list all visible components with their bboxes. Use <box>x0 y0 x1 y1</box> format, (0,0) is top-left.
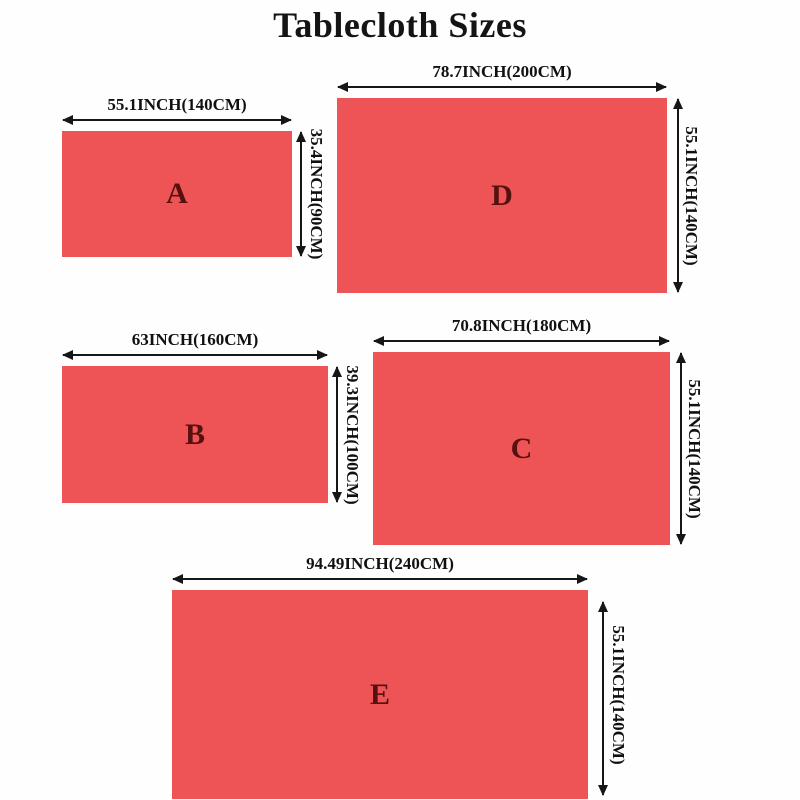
vertical-dimension-arrow-icon <box>336 367 338 502</box>
tablecloth-rect-b: B <box>62 366 328 503</box>
height-dimension-label: 35.4INCH(90CM) <box>306 129 326 260</box>
tablecloth-sizes-infographic: Tablecloth Sizes 55.1INCH(140CM) A 35.4I… <box>0 0 800 800</box>
width-dimension-label: 94.49INCH(240CM) <box>306 554 454 574</box>
figure-tablecloth-b: 63INCH(160CM) B 39.3INCH(100CM) <box>62 366 328 503</box>
width-dimension-label: 70.8INCH(180CM) <box>452 316 591 336</box>
size-letter-b: B <box>185 418 205 452</box>
tablecloth-rect-d: D <box>337 98 667 293</box>
vertical-dimension-arrow-icon <box>300 132 302 256</box>
page-title: Tablecloth Sizes <box>0 4 800 46</box>
size-letter-a: A <box>166 177 188 211</box>
size-letter-d: D <box>491 179 513 213</box>
tablecloth-rect-a: A <box>62 131 292 257</box>
horizontal-dimension-arrow-icon <box>63 119 291 121</box>
width-dimension-label: 63INCH(160CM) <box>132 330 259 350</box>
tablecloth-rect-e: E <box>172 590 588 799</box>
figure-tablecloth-a: 55.1INCH(140CM) A 35.4INCH(90CM) <box>62 131 292 257</box>
height-dimension-label: 55.1INCH(140CM) <box>681 126 701 265</box>
vertical-dimension-arrow-icon <box>680 353 682 544</box>
horizontal-dimension-arrow-icon <box>338 86 666 88</box>
horizontal-dimension-arrow-icon <box>173 578 587 580</box>
horizontal-dimension-arrow-icon <box>374 340 669 342</box>
height-dimension-label: 55.1INCH(140CM) <box>684 379 704 518</box>
width-dimension-label: 78.7INCH(200CM) <box>432 62 571 82</box>
tablecloth-rect-c: C <box>373 352 670 545</box>
figure-tablecloth-e: 94.49INCH(240CM) E 55.1INCH(140CM) <box>172 590 588 799</box>
figure-tablecloth-d: 78.7INCH(200CM) D 55.1INCH(140CM) <box>337 98 667 293</box>
figure-tablecloth-c: 70.8INCH(180CM) C 55.1INCH(140CM) <box>373 352 670 545</box>
height-dimension-label: 55.1INCH(140CM) <box>608 625 628 764</box>
width-dimension-label: 55.1INCH(140CM) <box>107 95 246 115</box>
size-letter-e: E <box>370 678 390 712</box>
size-letter-c: C <box>511 432 533 466</box>
height-dimension-label: 39.3INCH(100CM) <box>342 365 362 504</box>
vertical-dimension-arrow-icon <box>602 602 604 795</box>
horizontal-dimension-arrow-icon <box>63 354 327 356</box>
vertical-dimension-arrow-icon <box>677 99 679 292</box>
